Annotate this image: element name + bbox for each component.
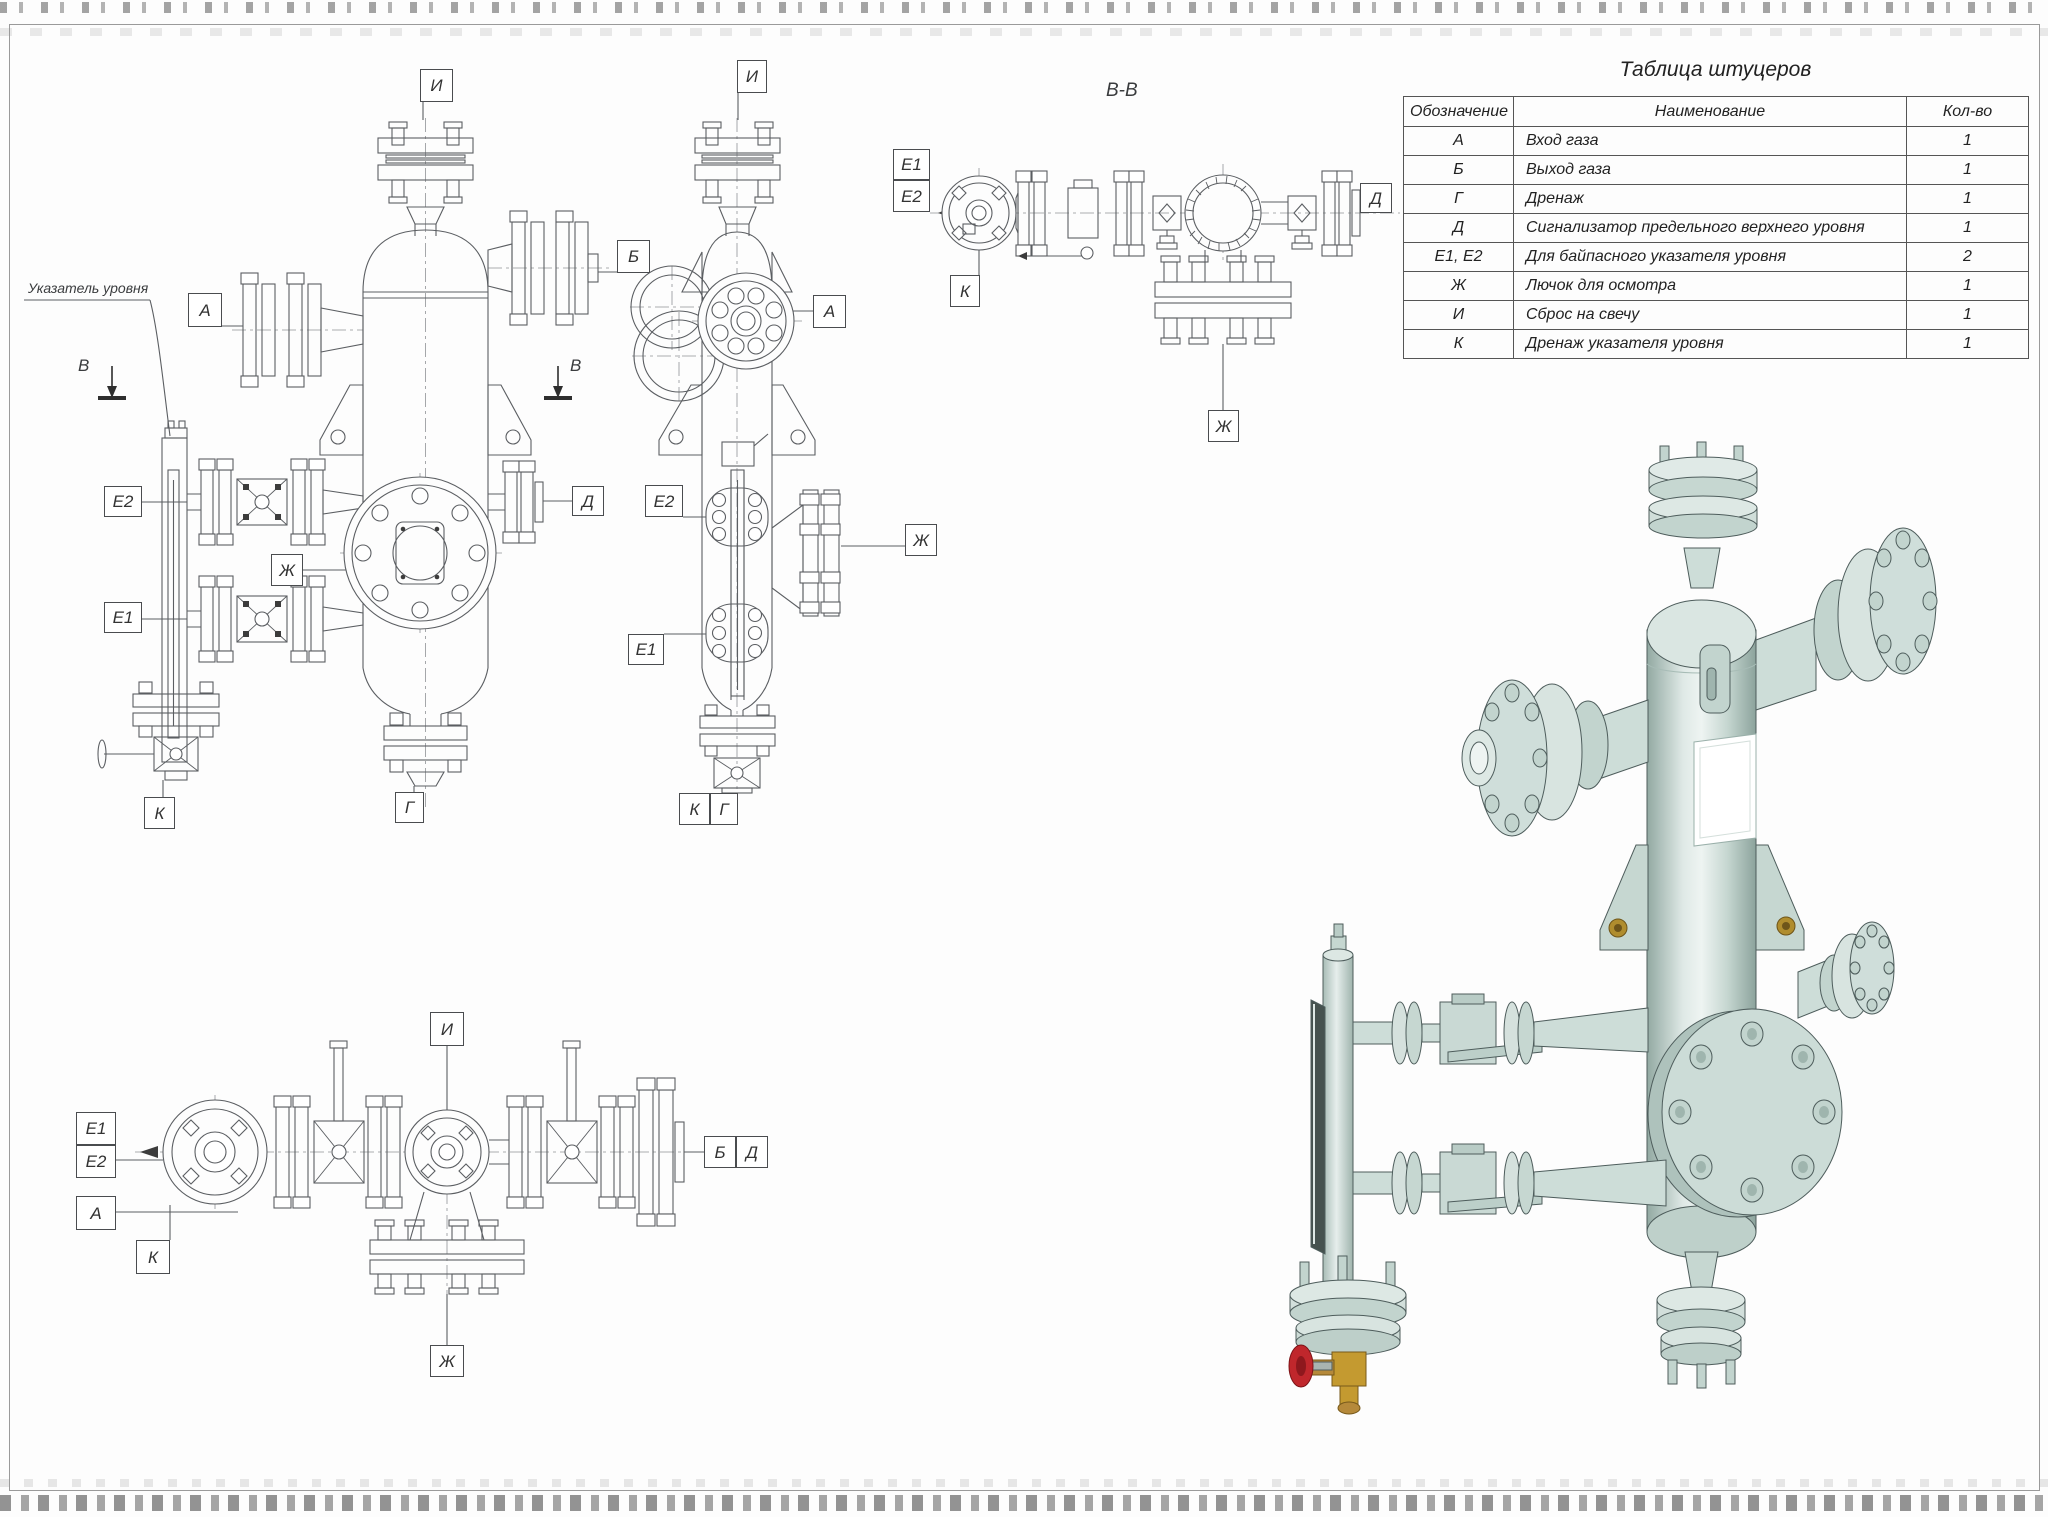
cell-name: Выход газа bbox=[1514, 156, 1907, 185]
cell-name: Сигнализатор предельного верхнего уровня bbox=[1514, 214, 1907, 243]
cell-designation: Г bbox=[1404, 185, 1514, 214]
callout-front-Г: Г bbox=[395, 792, 424, 823]
fittings-table-row: ГДренаж1 bbox=[1404, 185, 2029, 214]
cell-name: Сброс на свечу bbox=[1514, 301, 1907, 330]
callout-front-А: А bbox=[188, 293, 222, 327]
fittings-table-header-row: Обозначение Наименование Кол-во bbox=[1404, 97, 2029, 127]
callout-side-Е2: Е2 bbox=[645, 485, 683, 517]
callout-section-Е1: Е1 bbox=[893, 149, 930, 180]
level-gauge-note: Указатель уровня bbox=[28, 280, 148, 296]
callout-front-Б: Б bbox=[617, 240, 650, 273]
front-view-drawing bbox=[24, 102, 617, 810]
cell-designation: А bbox=[1404, 127, 1514, 156]
callout-side-Г: Г bbox=[710, 793, 738, 825]
section-view-title: В-В bbox=[1106, 80, 1138, 102]
cell-designation: Д bbox=[1404, 214, 1514, 243]
fittings-table-row: КДренаж указателя уровня1 bbox=[1404, 330, 2029, 359]
section-letter-right: В bbox=[570, 356, 581, 376]
render-3d bbox=[1289, 442, 1937, 1414]
cell-designation: К bbox=[1404, 330, 1514, 359]
cell-name: Для байпасного указателя уровня bbox=[1514, 243, 1907, 272]
callout-section-Ж: Ж bbox=[1208, 410, 1239, 442]
callout-front-Е2: Е2 bbox=[104, 486, 142, 517]
cell-qty: 1 bbox=[1907, 272, 2029, 301]
cell-qty: 1 bbox=[1907, 301, 2029, 330]
callout-section-Е2: Е2 bbox=[893, 180, 930, 212]
callout-side-Е1: Е1 bbox=[628, 634, 664, 665]
cell-name: Дренаж указателя уровня bbox=[1514, 330, 1907, 359]
callout-plan-Б: Б bbox=[704, 1136, 736, 1168]
cell-qty: 1 bbox=[1907, 127, 2029, 156]
col-header-designation: Обозначение bbox=[1404, 97, 1514, 127]
cell-qty: 1 bbox=[1907, 156, 2029, 185]
callout-section-Д: Д bbox=[1360, 183, 1392, 213]
cell-designation: Е1, Е2 bbox=[1404, 243, 1514, 272]
callout-front-Д: Д bbox=[572, 486, 604, 516]
fittings-table-title: Таблица штуцеров bbox=[1403, 58, 2028, 82]
callout-front-И: И bbox=[420, 69, 453, 102]
cell-name: Лючок для осмотра bbox=[1514, 272, 1907, 301]
section-view-drawing bbox=[930, 164, 1400, 410]
col-header-qty: Кол-во bbox=[1907, 97, 2029, 127]
cell-designation: И bbox=[1404, 301, 1514, 330]
cell-designation: Б bbox=[1404, 156, 1514, 185]
callout-plan-К: К bbox=[136, 1240, 170, 1274]
cell-qty: 2 bbox=[1907, 243, 2029, 272]
fittings-table-row: ИСброс на свечу1 bbox=[1404, 301, 2029, 330]
callout-plan-Е1: Е1 bbox=[76, 1112, 116, 1145]
drawing-sheet: Таблица штуцеров Обозначение Наименовани… bbox=[0, 0, 2048, 1517]
cell-name: Вход газа bbox=[1514, 127, 1907, 156]
callout-side-А: А bbox=[813, 295, 846, 328]
fittings-table-body: АВход газа1БВыход газа1ГДренаж1ДСигнализ… bbox=[1404, 127, 2029, 359]
fittings-table: Таблица штуцеров Обозначение Наименовани… bbox=[1403, 58, 2028, 359]
fittings-table-row: Е1, Е2Для байпасного указателя уровня2 bbox=[1404, 243, 2029, 272]
fittings-table-row: ЖЛючок для осмотра1 bbox=[1404, 272, 2029, 301]
cell-name: Дренаж bbox=[1514, 185, 1907, 214]
cell-qty: 1 bbox=[1907, 185, 2029, 214]
callout-plan-Е2: Е2 bbox=[76, 1145, 116, 1178]
fittings-table-row: БВыход газа1 bbox=[1404, 156, 2029, 185]
callout-side-Ж: Ж bbox=[905, 524, 937, 556]
section-letter-left: В bbox=[78, 356, 89, 376]
fittings-table-row: ДСигнализатор предельного верхнего уровн… bbox=[1404, 214, 2029, 243]
callout-side-К: К bbox=[679, 793, 710, 825]
side-view-drawing bbox=[630, 93, 905, 800]
callout-side-И: И bbox=[737, 60, 767, 93]
col-header-name: Наименование bbox=[1514, 97, 1907, 127]
callout-plan-Д: Д bbox=[736, 1136, 768, 1168]
fittings-table-row: АВход газа1 bbox=[1404, 127, 2029, 156]
cell-qty: 1 bbox=[1907, 330, 2029, 359]
cell-designation: Ж bbox=[1404, 272, 1514, 301]
callout-front-К: К bbox=[144, 797, 175, 829]
callout-front-Ж: Ж bbox=[271, 554, 303, 586]
callout-plan-И: И bbox=[430, 1012, 464, 1046]
callout-plan-Ж: Ж bbox=[430, 1345, 464, 1377]
callout-plan-А: А bbox=[76, 1196, 116, 1230]
callout-section-К: К bbox=[950, 275, 980, 307]
cell-qty: 1 bbox=[1907, 214, 2029, 243]
plan-view-drawing bbox=[116, 1040, 704, 1365]
callout-front-Е1: Е1 bbox=[104, 602, 142, 633]
